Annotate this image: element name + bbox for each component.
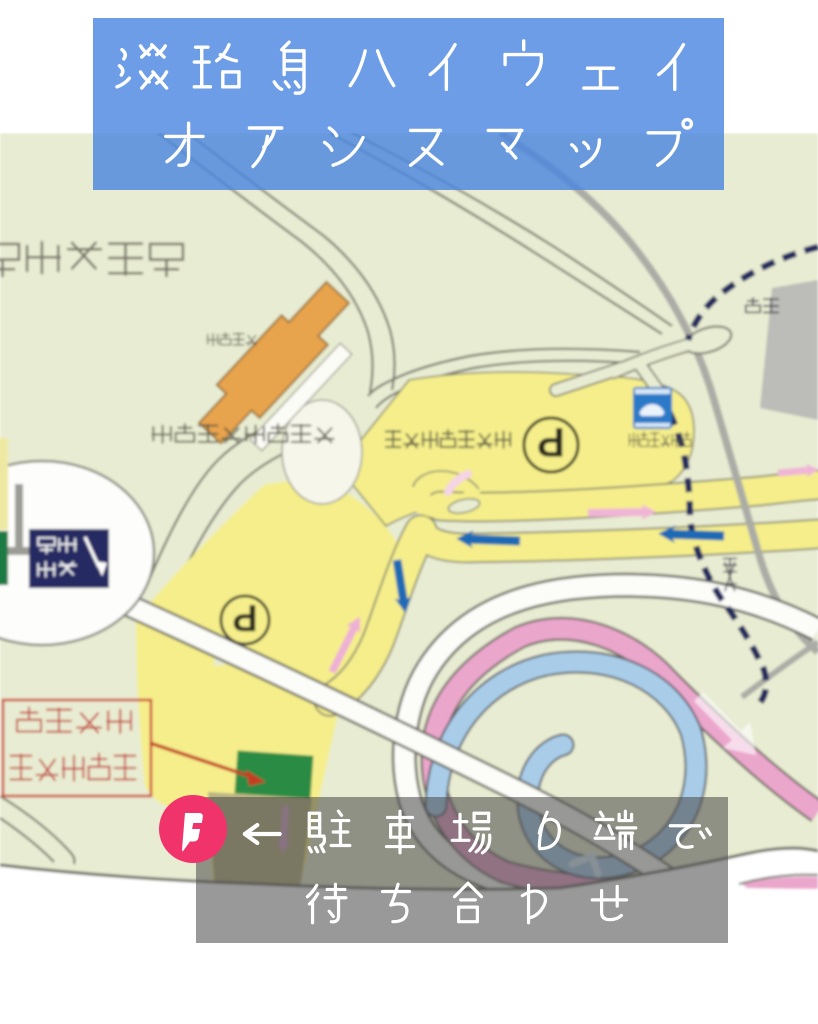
svg-text:P: P [232, 596, 257, 638]
svg-text:P: P [537, 419, 565, 466]
